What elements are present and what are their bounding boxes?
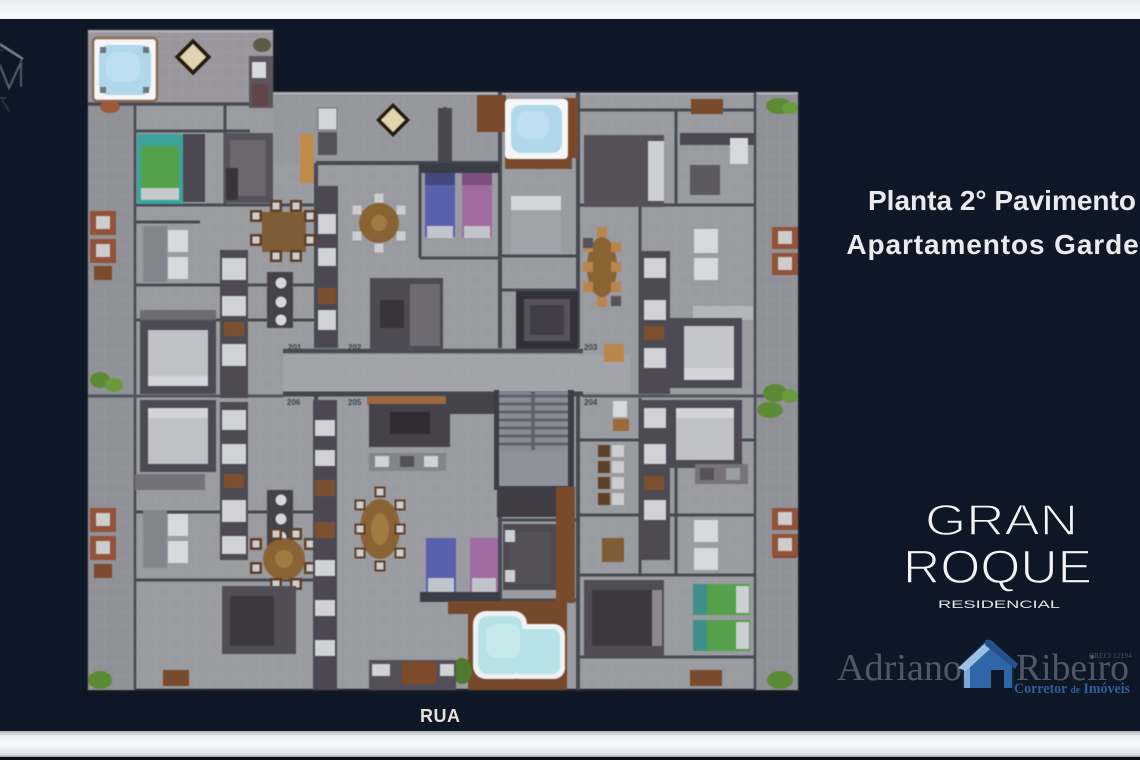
svg-text:Adriano: Adriano bbox=[837, 647, 962, 689]
svg-text:201: 201 bbox=[288, 343, 302, 352]
svg-text:206: 206 bbox=[287, 398, 301, 407]
svg-text:203: 203 bbox=[584, 343, 598, 352]
svg-text:ROQUE: ROQUE bbox=[903, 540, 1092, 593]
svg-text:CRECI 12194: CRECI 12194 bbox=[1089, 651, 1132, 660]
svg-text:202: 202 bbox=[348, 343, 362, 352]
svg-text:RESIDENCIAL: RESIDENCIAL bbox=[938, 599, 1060, 611]
svg-text:204: 204 bbox=[584, 398, 598, 407]
svg-text:GRAN: GRAN bbox=[925, 496, 1078, 545]
svg-text:205: 205 bbox=[348, 398, 362, 407]
